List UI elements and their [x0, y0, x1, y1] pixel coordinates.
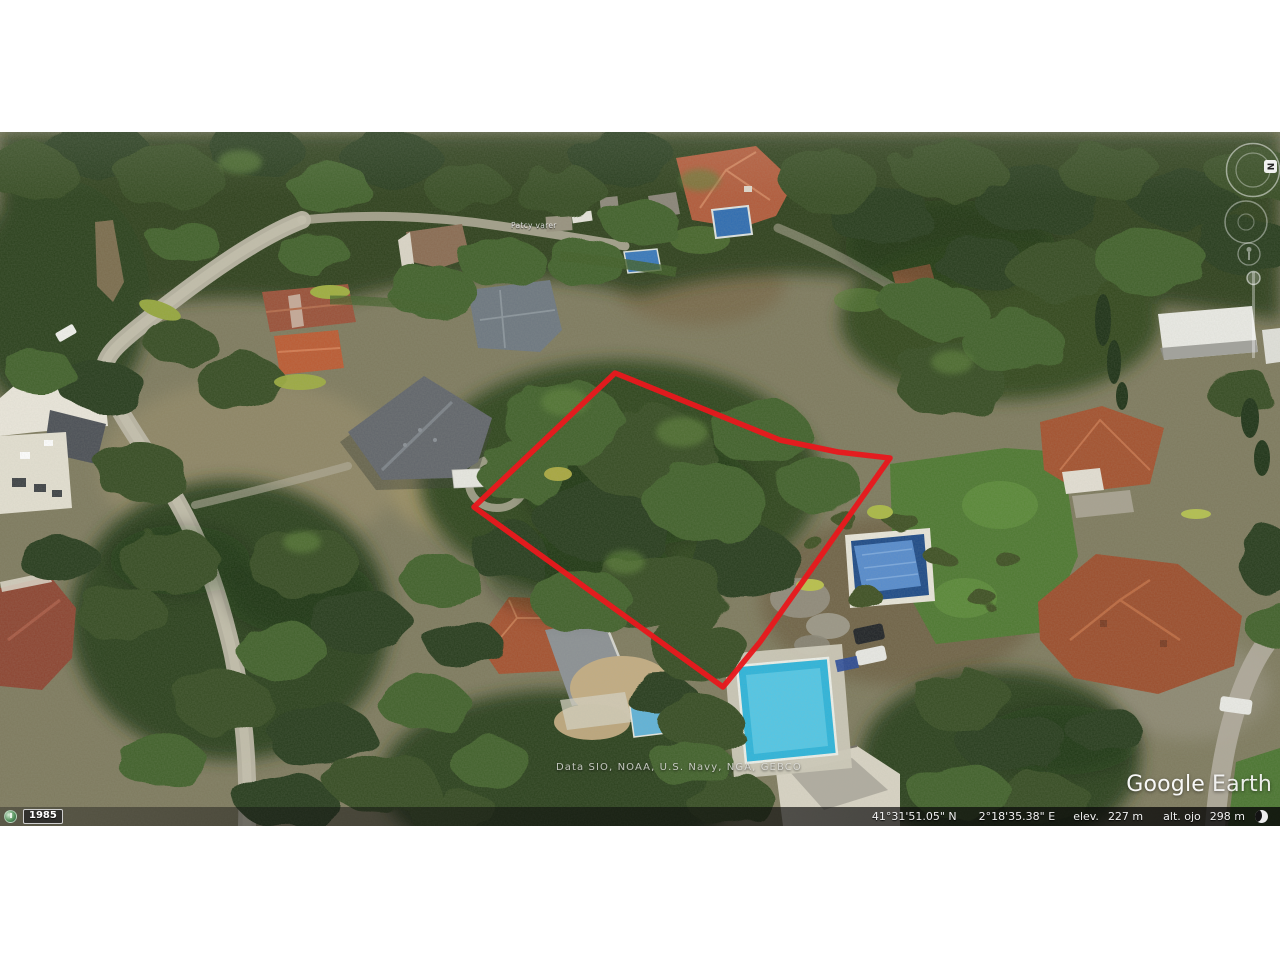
latitude-readout: 41°31'51.05" N: [872, 810, 957, 823]
satellite-imagery: N: [0, 132, 1280, 826]
elevation-value: 227 m: [1108, 810, 1143, 823]
compass-north-label: N: [1265, 163, 1275, 171]
longitude-readout: 2°18'35.38" E: [979, 810, 1056, 823]
history-clock-icon[interactable]: [4, 810, 17, 823]
light-overlay: [0, 132, 1280, 352]
map-viewport[interactable]: N Patcy varer Data SIO, NOAA, U.S. Nav: [0, 132, 1280, 826]
letterbox-bottom: [0, 826, 1280, 960]
eye-altitude-label: alt. ojo: [1163, 810, 1201, 823]
watermark-earth: Earth: [1212, 772, 1272, 797]
google-earth-watermark: GoogleEarth: [1126, 772, 1272, 797]
eye-altitude-value: 298 m: [1210, 810, 1245, 823]
watermark-google: Google: [1126, 772, 1205, 797]
map-place-label: Patcy varer: [511, 221, 557, 230]
google-earth-window: N Patcy varer Data SIO, NOAA, U.S. Nav: [0, 0, 1280, 960]
history-year-badge[interactable]: 1985: [23, 809, 63, 824]
elevation-label: elev.: [1073, 810, 1099, 823]
status-bar: 1985 41°31'51.05" N 2°18'35.38" E elev. …: [0, 807, 1280, 826]
letterbox-top: [0, 0, 1280, 132]
data-attribution: Data SIO, NOAA, U.S. Navy, NGA, GEBCO: [556, 762, 802, 773]
sun-moon-icon[interactable]: [1255, 810, 1268, 823]
compass-north-marker[interactable]: N: [1264, 160, 1277, 173]
